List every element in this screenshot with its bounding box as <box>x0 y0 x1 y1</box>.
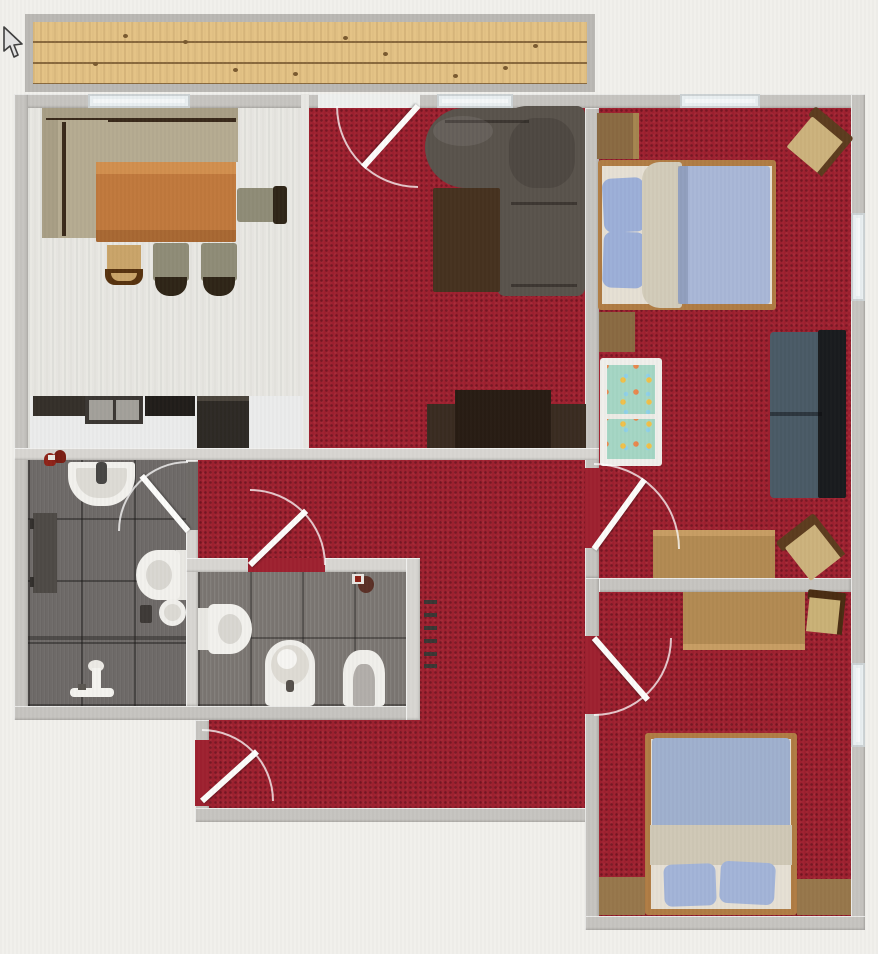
wood-knot <box>233 68 238 72</box>
wood-knot <box>123 34 128 38</box>
bed-blanket-blue <box>652 738 790 828</box>
bed-duvet-shade <box>678 166 688 304</box>
tv-sideboard[interactable] <box>427 390 586 448</box>
bed-pillow-1 <box>602 177 647 233</box>
wall <box>585 578 599 930</box>
counter-dark <box>33 396 85 416</box>
wardrobe-edge <box>633 113 639 159</box>
lowboard-left[interactable] <box>599 877 645 915</box>
wall <box>14 448 599 460</box>
toilet-bathroom[interactable] <box>136 548 186 602</box>
sideboard-right-wing <box>551 404 586 448</box>
wardrobe[interactable] <box>597 113 639 159</box>
fitting-crossbar <box>70 688 114 697</box>
chair-legs <box>203 277 235 296</box>
towel-radiator[interactable] <box>33 513 57 593</box>
wood-knot <box>183 40 188 44</box>
dining-table[interactable] <box>96 162 236 242</box>
wood-knot <box>533 44 538 48</box>
wall <box>14 94 28 720</box>
brush-cap-dot <box>355 576 361 582</box>
bench-frame-line-v <box>62 122 66 236</box>
basin-faucet <box>96 462 107 484</box>
wc-brush[interactable] <box>352 574 374 593</box>
tap-knob <box>78 684 86 690</box>
bed-pillow-2 <box>602 231 646 288</box>
chair-backrest <box>273 186 287 224</box>
desk-2[interactable] <box>683 592 805 650</box>
radiator[interactable] <box>424 600 437 668</box>
crib[interactable] <box>600 358 662 466</box>
dining-chair-south-2[interactable] <box>201 243 237 296</box>
sofa-cushion-line-3 <box>511 284 577 287</box>
wood-knot <box>93 62 98 66</box>
toilet-bowl-inner <box>218 614 242 644</box>
crib-mattress <box>607 365 655 459</box>
window-bedroom1-east[interactable] <box>851 213 865 301</box>
coffee-table[interactable] <box>433 188 500 292</box>
bidet-bowl-highlight <box>277 649 297 669</box>
sideboard-center <box>455 390 551 448</box>
wood-knot <box>293 72 298 76</box>
kids-chair-inner <box>111 273 137 281</box>
wall-toilet-cavity <box>353 664 375 706</box>
bed-pillow-2 <box>719 861 776 906</box>
bathtub-fitting[interactable] <box>70 660 114 704</box>
radiator-fin <box>424 613 437 617</box>
daybed[interactable] <box>770 330 846 498</box>
tall-unit-edge <box>197 396 249 401</box>
bidet[interactable] <box>265 640 315 706</box>
radiator-fin <box>424 600 437 604</box>
window-dining-north[interactable] <box>88 94 190 108</box>
chair-seat <box>237 188 275 222</box>
cooktop <box>145 396 195 416</box>
floor-threshold <box>301 94 309 448</box>
slippers[interactable] <box>44 450 66 466</box>
window-living-north[interactable] <box>437 94 513 108</box>
stool-shade <box>164 604 181 621</box>
sofa-corner-shade <box>509 118 575 188</box>
radiator-fin <box>424 664 437 668</box>
wall <box>585 916 865 930</box>
double-bed-1[interactable] <box>598 160 776 310</box>
desk-chair-2[interactable] <box>804 589 846 637</box>
desk-edge <box>683 644 805 650</box>
bed-duvet-fold <box>642 162 682 308</box>
bed-duvet-blue <box>678 166 770 304</box>
sofa-highlight <box>433 116 493 146</box>
wall <box>14 706 420 720</box>
bed-blanket-beige <box>650 825 792 865</box>
double-bed-2[interactable] <box>645 733 797 915</box>
kids-chair[interactable] <box>105 245 143 285</box>
window-bedroom2-east[interactable] <box>851 663 865 747</box>
sideboard-left-wing <box>427 404 455 448</box>
daybed-dark-edge <box>818 330 846 498</box>
bath-stool[interactable] <box>159 599 186 626</box>
fitting-riser <box>92 668 101 690</box>
paper-holder[interactable] <box>140 605 152 623</box>
mouse-cursor <box>2 26 24 59</box>
wood-knot <box>343 36 348 40</box>
wall <box>406 558 420 720</box>
tall-unit <box>197 396 249 448</box>
bathtub-edge[interactable] <box>28 636 186 640</box>
window-bedroom1-north[interactable] <box>680 94 760 108</box>
toilet-bowl-inner <box>146 560 172 590</box>
bed-pillow-1 <box>663 863 716 907</box>
table-shade <box>96 230 236 242</box>
toilet-wc[interactable] <box>198 604 252 654</box>
wood-knot <box>503 66 508 70</box>
wood-knot <box>383 52 388 56</box>
floor-plan-canvas <box>0 0 878 954</box>
wood-knot <box>453 74 458 78</box>
radiator-bracket-bottom <box>30 577 34 587</box>
chair-legs <box>155 277 187 296</box>
wall <box>195 808 599 822</box>
slipper-dot <box>48 455 55 460</box>
sink-divider <box>113 400 116 420</box>
lowboard-right[interactable] <box>797 879 851 915</box>
chair-seat <box>153 243 189 281</box>
dresser[interactable] <box>599 312 635 352</box>
table-top-edge <box>96 162 236 174</box>
slipper-b <box>54 450 66 463</box>
balcony-deck[interactable] <box>25 14 595 92</box>
radiator-bracket-top <box>30 519 34 529</box>
dining-chair-east[interactable] <box>237 186 287 224</box>
radiator-fin <box>424 652 437 656</box>
chair-seat <box>201 243 237 281</box>
radiator-fin <box>424 626 437 630</box>
crib-divider <box>607 414 655 419</box>
sofa-cushion-line-2 <box>511 202 577 205</box>
radiator-fin <box>424 639 437 643</box>
wall-toilet-wc[interactable] <box>343 650 385 706</box>
bidet-tap <box>286 680 294 692</box>
daybed-seam <box>770 412 822 416</box>
kitchen-counter[interactable] <box>30 396 303 448</box>
dining-chair-south-1[interactable] <box>153 243 189 296</box>
